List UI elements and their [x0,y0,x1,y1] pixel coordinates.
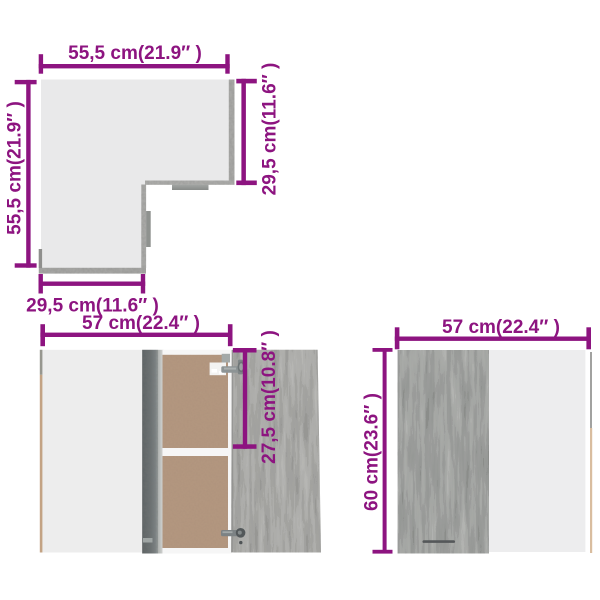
svg-text:57 cm(22.4″ ): 57 cm(22.4″ ) [82,313,200,334]
svg-text:55,5 cm(21.9″ ): 55,5 cm(21.9″ ) [68,43,202,64]
svg-text:55,5 cm(21.9″ ): 55,5 cm(21.9″ ) [5,101,26,235]
svg-text:27,5 cm(10.8″ ): 27,5 cm(10.8″ ) [259,330,280,464]
svg-text:60 cm(23.6″ ): 60 cm(23.6″ ) [362,393,383,511]
svg-text:57 cm(22.4″ ): 57 cm(22.4″ ) [442,317,560,338]
svg-text:29,5 cm(11.6″ ): 29,5 cm(11.6″ ) [260,63,281,196]
